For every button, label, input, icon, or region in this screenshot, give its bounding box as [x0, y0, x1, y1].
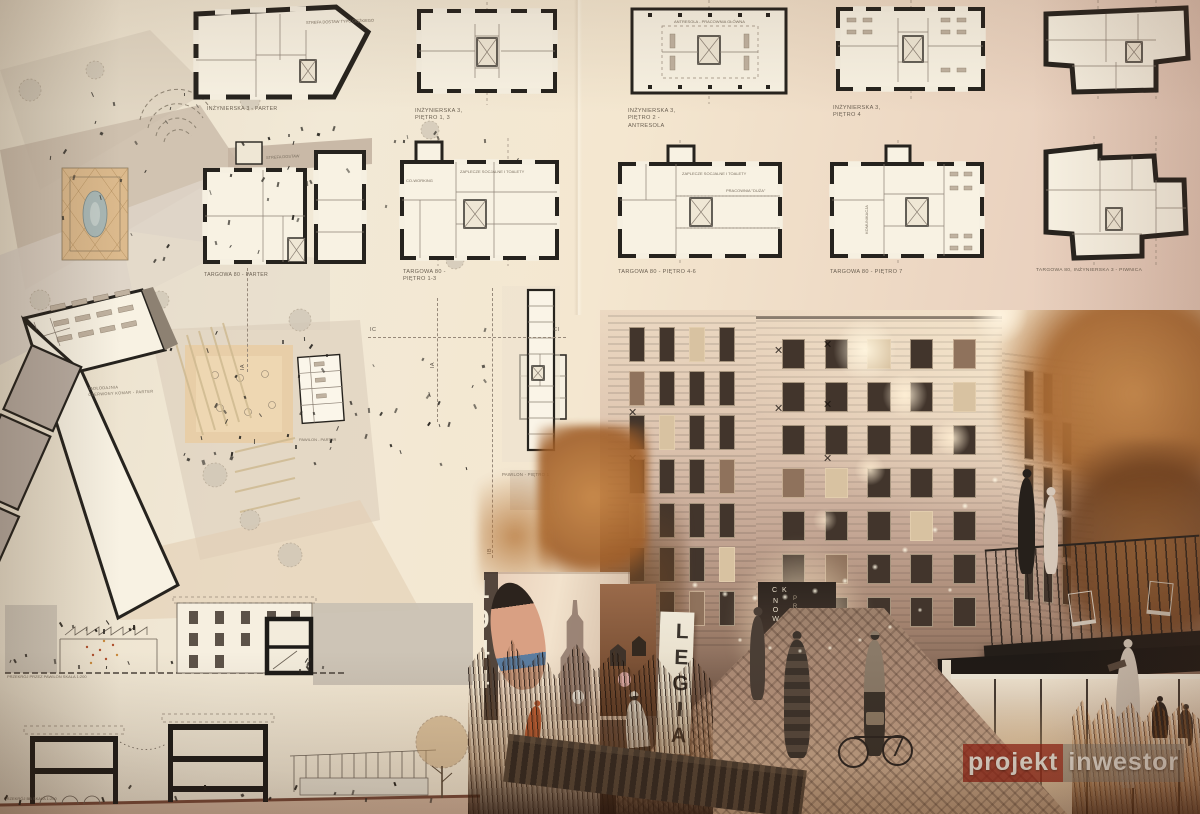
axis-marker-ci: CI — [553, 327, 560, 333]
plan-piwnica-upper — [1038, 2, 1193, 97]
watermark-projekt: projekt — [963, 744, 1063, 782]
room-label: PRACOWNIA "DUŻA" — [726, 188, 766, 193]
axis-marker-ia: IA — [240, 364, 246, 370]
plan-targowa-pietro-7: KOMUNIKACJA TARGOWA 80 - PIĘTRO 7 — [828, 142, 988, 276]
plan-label: INŻYNIERSKA 3,PIĘTRO 2 -ANTRESOLA — [628, 108, 790, 130]
house-icon — [632, 636, 646, 656]
room-label: ZAPLECZE SOCJALNE I TOALETY — [682, 171, 747, 176]
watermark-inwestor: inwestor — [1063, 744, 1184, 782]
wall-anchor-icon: ✕ — [774, 402, 783, 415]
plan-targowa-pietro-1-3: ZAPLECZE SOCJALNE I TOALETY CO-WORKING T… — [398, 140, 563, 284]
plan-label: INŻYNIERSKA 3,PIĘTRO 4 — [833, 105, 988, 120]
plan-inzynierska-pietro-1-3: INŻYNIERSKA 3,PIĘTRO 1, 3 — [413, 6, 561, 123]
room-label: KOMUNIKACJA — [864, 205, 869, 234]
wall-anchor-icon: ✕ — [774, 344, 783, 357]
plan-inzynierska-pietro-4: INŻYNIERSKA 3,PIĘTRO 4 — [833, 4, 988, 120]
poster-crease — [574, 0, 582, 315]
room-label: ZAPLECZE SOCJALNE I TOALETY — [460, 169, 525, 174]
bicycle — [838, 706, 912, 768]
door-sign-ck: CK — [772, 587, 792, 594]
inzynierska-parter-label: INŻYNIERSKA 3 - PARTER — [207, 105, 277, 112]
wall-anchor-icon: ✕ — [628, 406, 637, 419]
wall-anchor-icon: ✕ — [823, 452, 832, 465]
plan-label: TARGOWA 80, INŻYNIERSKA 3 - PIWNICA — [1036, 268, 1194, 274]
plan-inzynierska-antresola: ANTRESOLA - PRACOWNIA GŁÓWNA INŻYNIERSKA… — [628, 4, 790, 130]
terrace-chair — [1068, 590, 1096, 626]
presentation-board: STREFA DOSTAW TYPU CIĘŻKIEGO INŻYNIERSKA… — [0, 0, 1200, 814]
wall-anchor-icon: ✕ — [823, 338, 832, 351]
section-axis — [368, 337, 566, 338]
plan-label: INŻYNIERSKA 3,PIĘTRO 1, 3 — [415, 108, 561, 123]
projektinwestor-watermark: projekt inwestor — [963, 744, 1184, 782]
section2-label: PRZEKRÓJ BB SKALA 1:200 — [4, 796, 57, 801]
bicycle-basket — [866, 712, 884, 725]
section-pawilon: PRZEKRÓJ PRZEZ PAWILON SKALA 1:200 — [5, 595, 475, 690]
section1-label: PRZEKRÓJ PRZEZ PAWILON SKALA 1:200 — [7, 674, 87, 679]
bicycle-frame — [846, 736, 905, 756]
person-on-terrace — [1044, 496, 1058, 574]
targowa-parter-label: TARGOWA 80 - PARTER — [204, 272, 268, 278]
section-bb: PRZEKRÓJ BB SKALA 1:200 — [0, 700, 480, 814]
antresola-room-label: ANTRESOLA - PRACOWNIA GŁÓWNA — [674, 19, 745, 24]
person-on-terrace — [1018, 478, 1035, 574]
plan-targowa-pietro-4-6: ZAPLECZE SOCJALNE I TOALETY PRACOWNIA "D… — [616, 142, 788, 276]
terrace-chair — [1146, 581, 1173, 616]
woman-in-dress — [784, 640, 810, 758]
pawilon-parter-label: PAWILON - PARTER — [299, 437, 337, 442]
plan-label: TARGOWA 80 - PIĘTRO 4-6 — [618, 269, 788, 276]
section-axis — [437, 298, 438, 422]
pedestrian — [750, 616, 765, 700]
wall-anchor-icon: ✕ — [823, 398, 832, 411]
section-axis — [247, 268, 248, 372]
axis-marker-ic: IC — [370, 327, 377, 333]
room-label: CO-WORKING — [406, 178, 433, 183]
plan-label: TARGOWA 80 - PIĘTRO 7 — [830, 269, 988, 276]
axis-marker-ia: IA — [430, 362, 436, 368]
plan-piwnica-lower: TARGOWA 80, INŻYNIERSKA 3 - PIWNICA — [1036, 138, 1194, 274]
